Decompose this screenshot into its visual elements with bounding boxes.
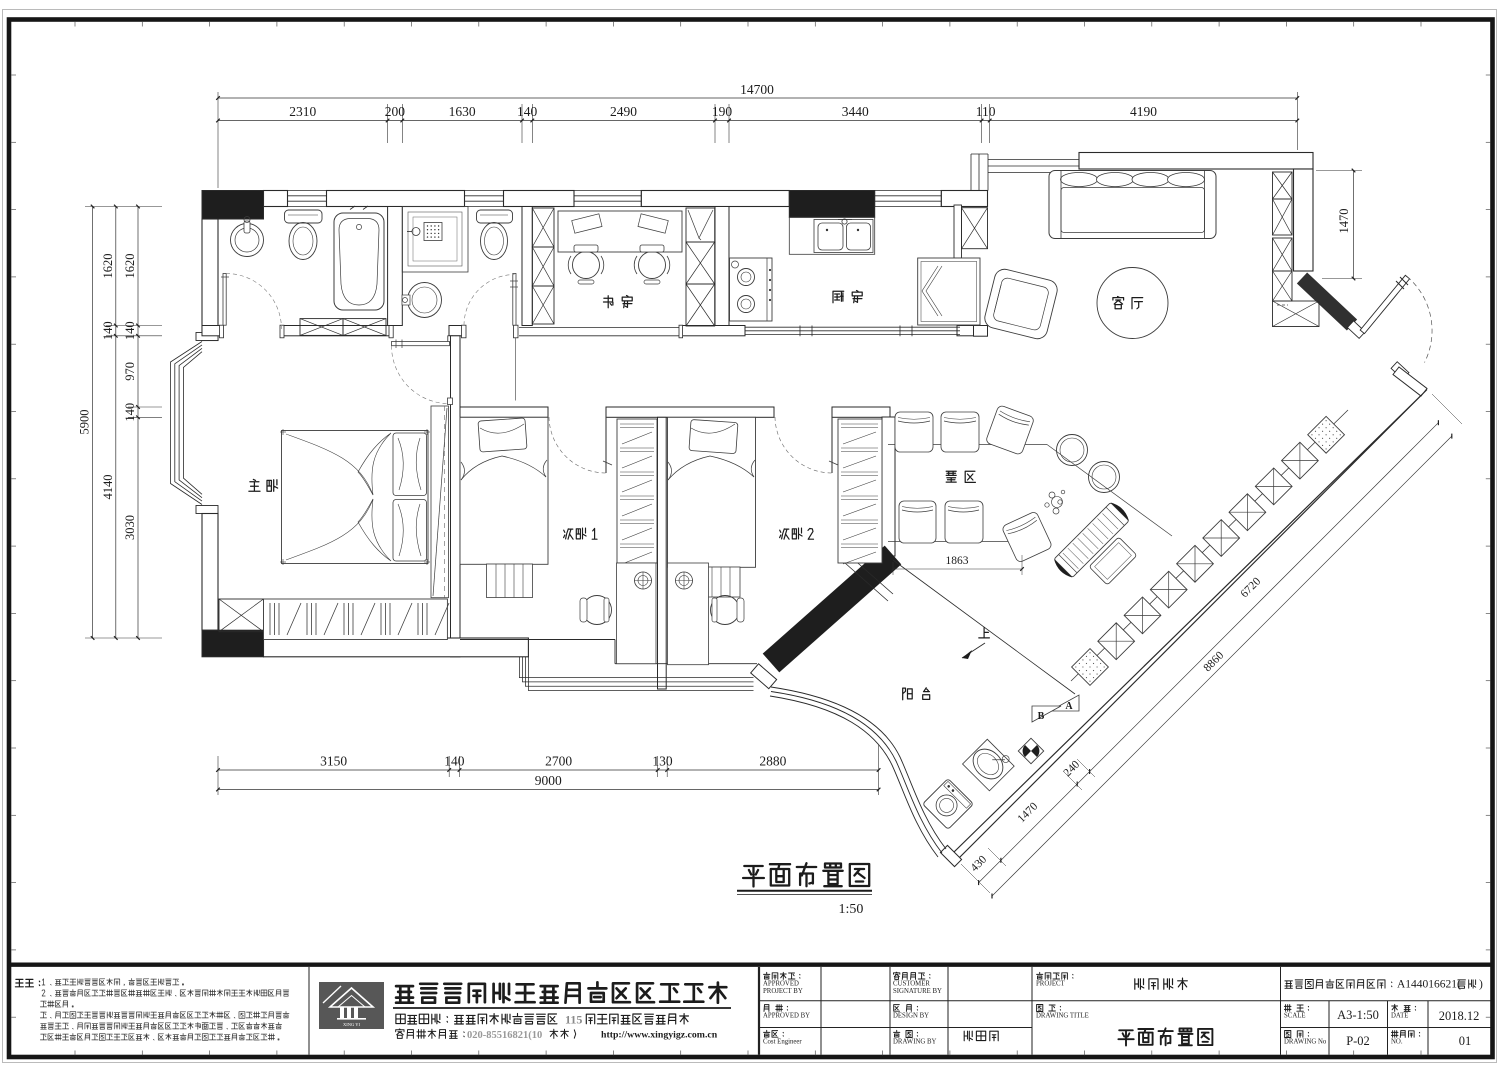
svg-text:110: 110 <box>976 104 996 119</box>
svg-text:A3-1:50: A3-1:50 <box>1337 1008 1379 1022</box>
svg-text:DRAWING TITLE: DRAWING TITLE <box>1036 1013 1089 1020</box>
svg-text:1:50: 1:50 <box>839 902 864 917</box>
svg-text:A: A <box>1065 701 1073 712</box>
svg-text:NO.: NO. <box>1391 1039 1403 1046</box>
svg-text:P-02: P-02 <box>1346 1034 1370 1048</box>
svg-text:115: 115 <box>565 1013 582 1027</box>
svg-text:2018.12: 2018.12 <box>1439 1009 1480 1023</box>
svg-text:PROJECT: PROJECT <box>1036 981 1066 988</box>
svg-text:2310: 2310 <box>289 104 316 119</box>
svg-text:140: 140 <box>123 403 137 422</box>
svg-text:2880: 2880 <box>759 754 786 769</box>
svg-text:130: 130 <box>652 754 673 769</box>
svg-text:200: 200 <box>385 104 406 119</box>
svg-text:2700: 2700 <box>545 754 572 769</box>
svg-text:1620: 1620 <box>123 254 137 279</box>
svg-text:Cost Engineer: Cost Engineer <box>763 1039 802 1046</box>
svg-text:1630: 1630 <box>449 104 476 119</box>
svg-text:140: 140 <box>444 754 465 769</box>
svg-text:B: B <box>1038 711 1045 722</box>
svg-text:140: 140 <box>123 321 137 340</box>
svg-text:3440: 3440 <box>842 104 869 119</box>
svg-text:9000: 9000 <box>535 773 562 788</box>
svg-text:DRAWING No: DRAWING No <box>1284 1039 1327 1046</box>
svg-text:190: 190 <box>712 104 733 119</box>
svg-text:PROJECT BY: PROJECT BY <box>763 988 803 995</box>
svg-text:4190: 4190 <box>1130 104 1157 119</box>
svg-text:http://www.xingyigz.com.cn: http://www.xingyigz.com.cn <box>601 1030 718 1041</box>
svg-text:020-85516821(10: 020-85516821(10 <box>467 1030 542 1041</box>
svg-text:APPROVED BY: APPROVED BY <box>763 1013 810 1020</box>
svg-text:140: 140 <box>517 104 538 119</box>
svg-text:01: 01 <box>1459 1034 1472 1048</box>
svg-text:4140: 4140 <box>101 475 115 500</box>
svg-text:SIGNATURE BY: SIGNATURE BY <box>893 988 942 995</box>
svg-text:): ) <box>1479 979 1483 991</box>
svg-text:5900: 5900 <box>78 410 92 435</box>
svg-text:140: 140 <box>101 321 115 340</box>
svg-text:APPROVED: APPROVED <box>763 981 799 988</box>
svg-text:970: 970 <box>123 362 137 381</box>
svg-text:1620: 1620 <box>101 254 115 279</box>
svg-text:2490: 2490 <box>610 104 637 119</box>
svg-text:CUSTOMER: CUSTOMER <box>893 981 930 988</box>
svg-text:DRAWING BY: DRAWING BY <box>893 1039 937 1046</box>
svg-text:A144016621(: A144016621( <box>1397 979 1461 991</box>
svg-text:3030: 3030 <box>123 515 137 540</box>
svg-text:14700: 14700 <box>740 82 774 97</box>
svg-text:1470: 1470 <box>1337 209 1351 234</box>
svg-text:XING YI: XING YI <box>343 1022 360 1027</box>
svg-text:DESIGN BY: DESIGN BY <box>893 1013 929 1020</box>
svg-text:SCALE: SCALE <box>1284 1013 1306 1020</box>
svg-text:1863: 1863 <box>946 555 969 567</box>
svg-text:3150: 3150 <box>320 754 347 769</box>
svg-text:DATE: DATE <box>1391 1013 1408 1020</box>
